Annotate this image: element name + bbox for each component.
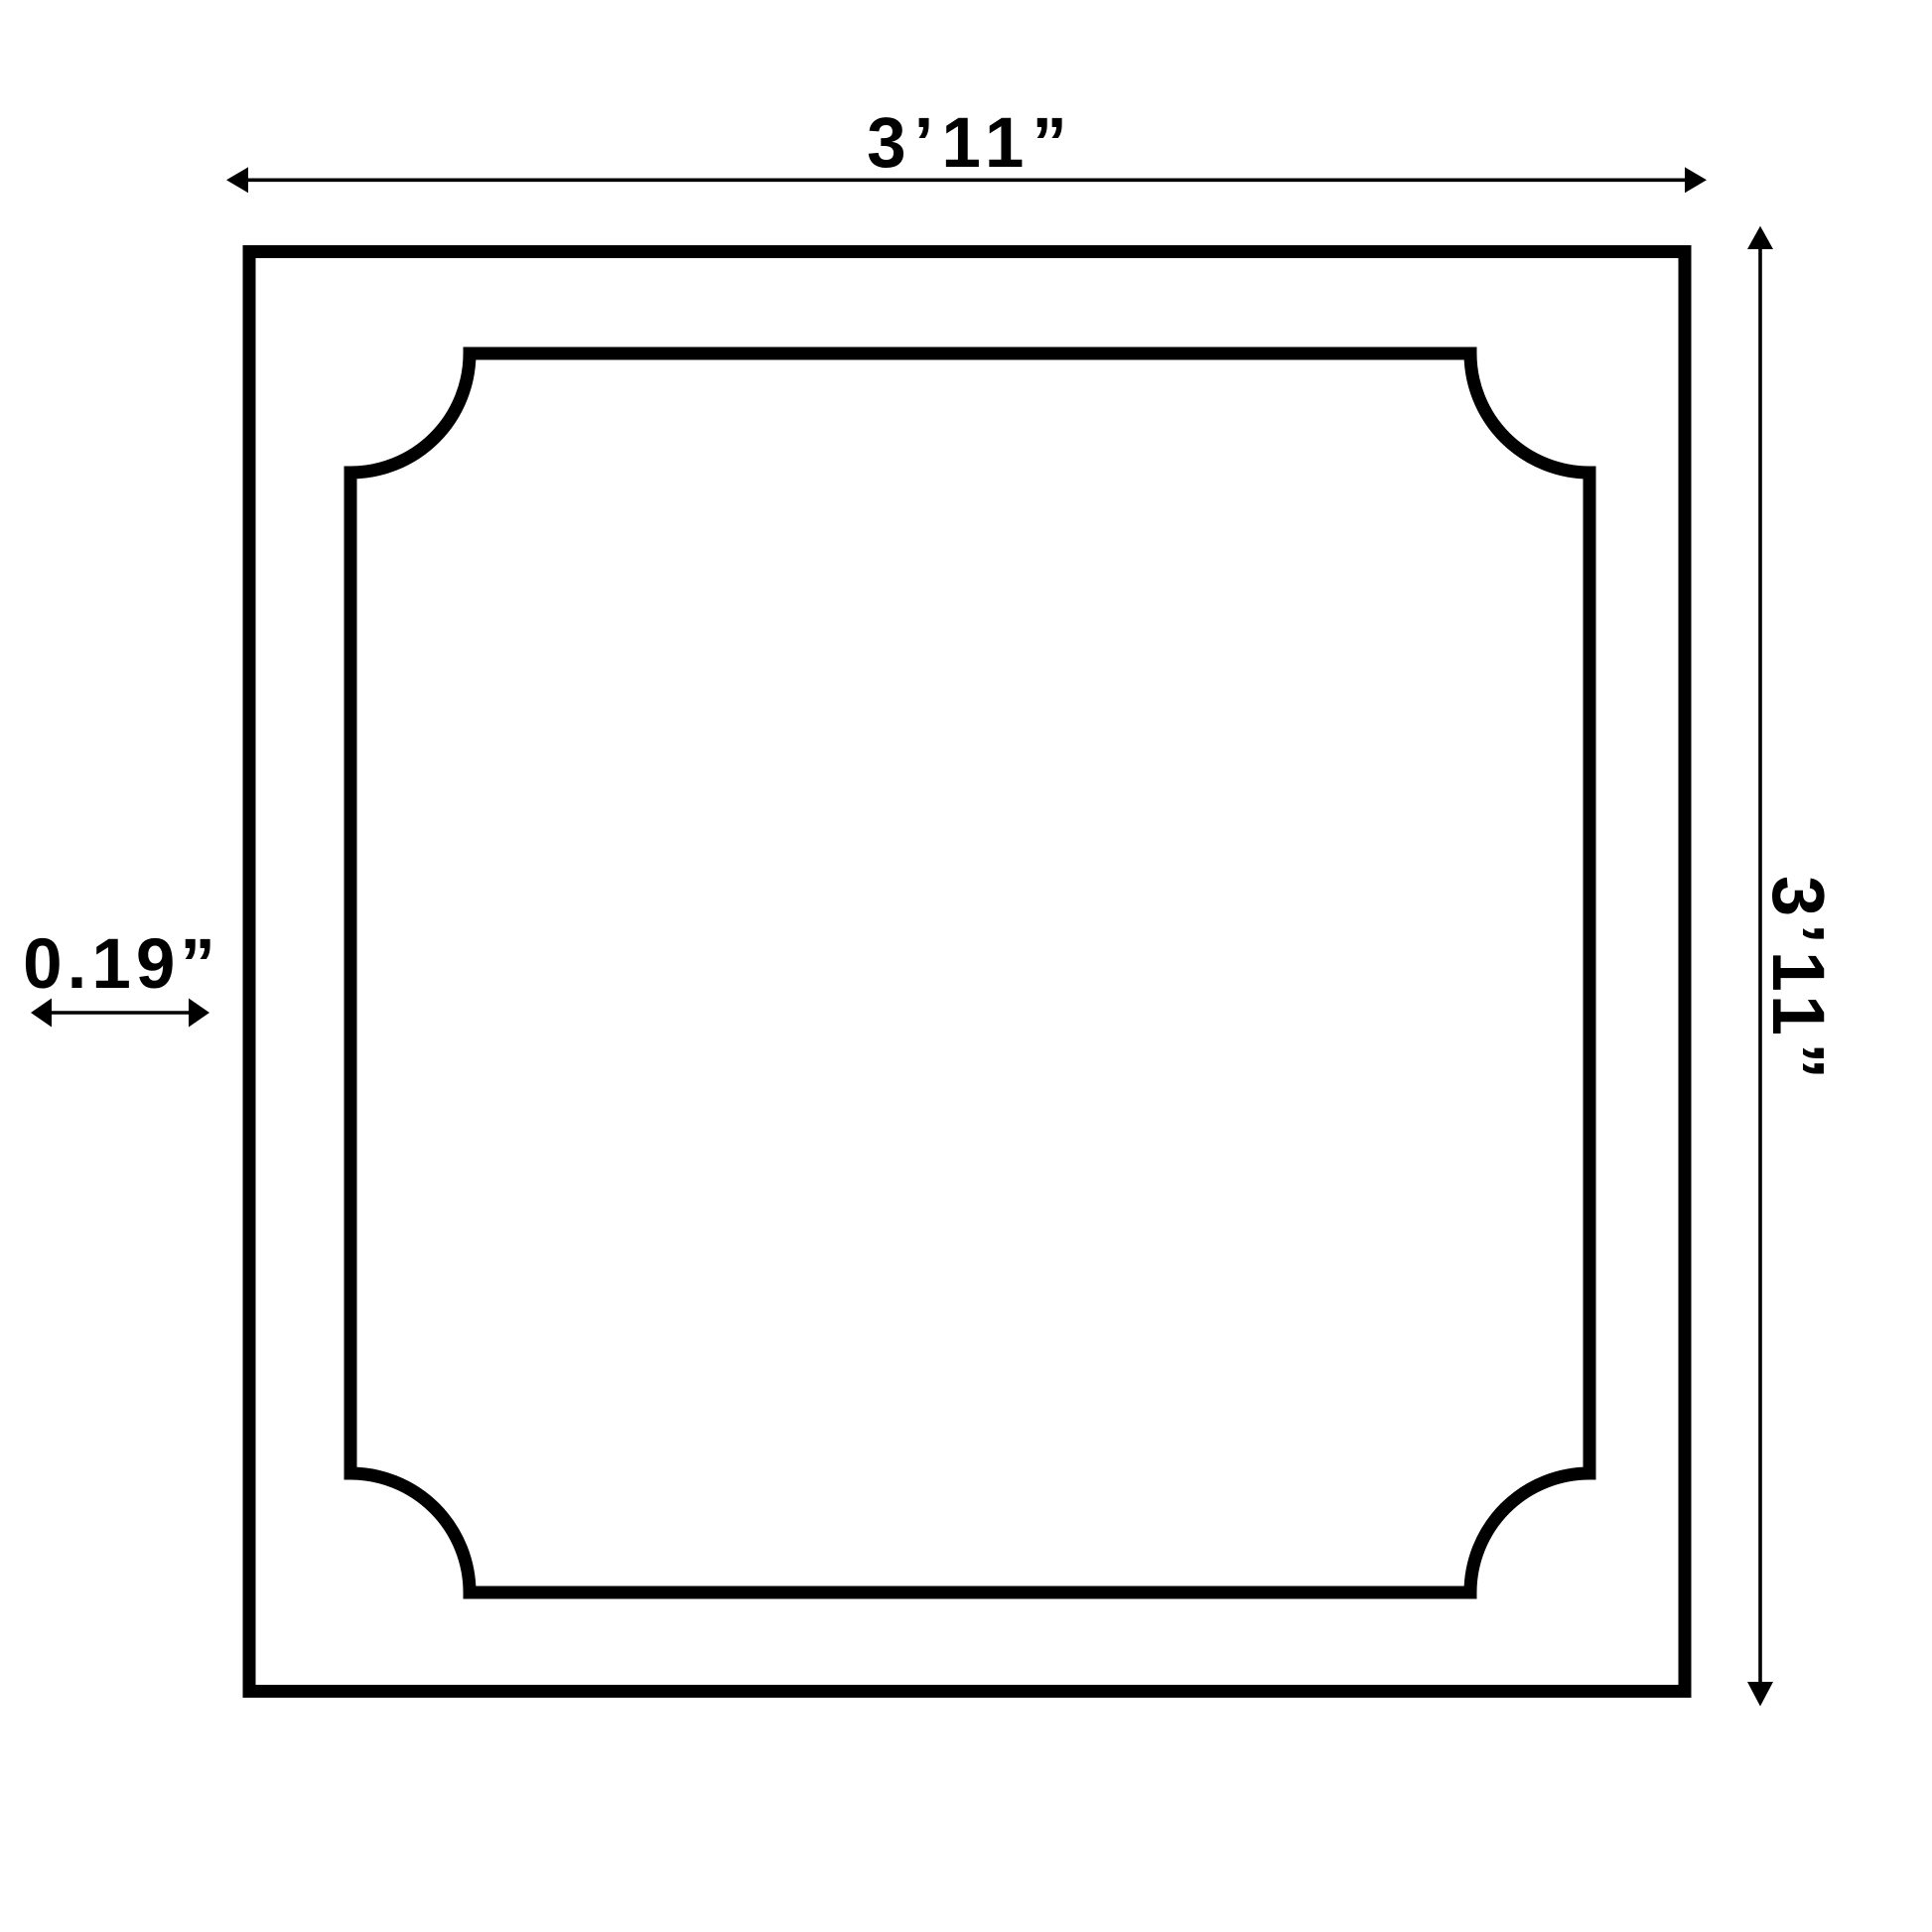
svg-text:3’11”: 3’11” — [1757, 876, 1840, 1086]
svg-text:0.19”: 0.19” — [23, 925, 220, 1004]
svg-text:3’11”: 3’11” — [867, 104, 1075, 183]
